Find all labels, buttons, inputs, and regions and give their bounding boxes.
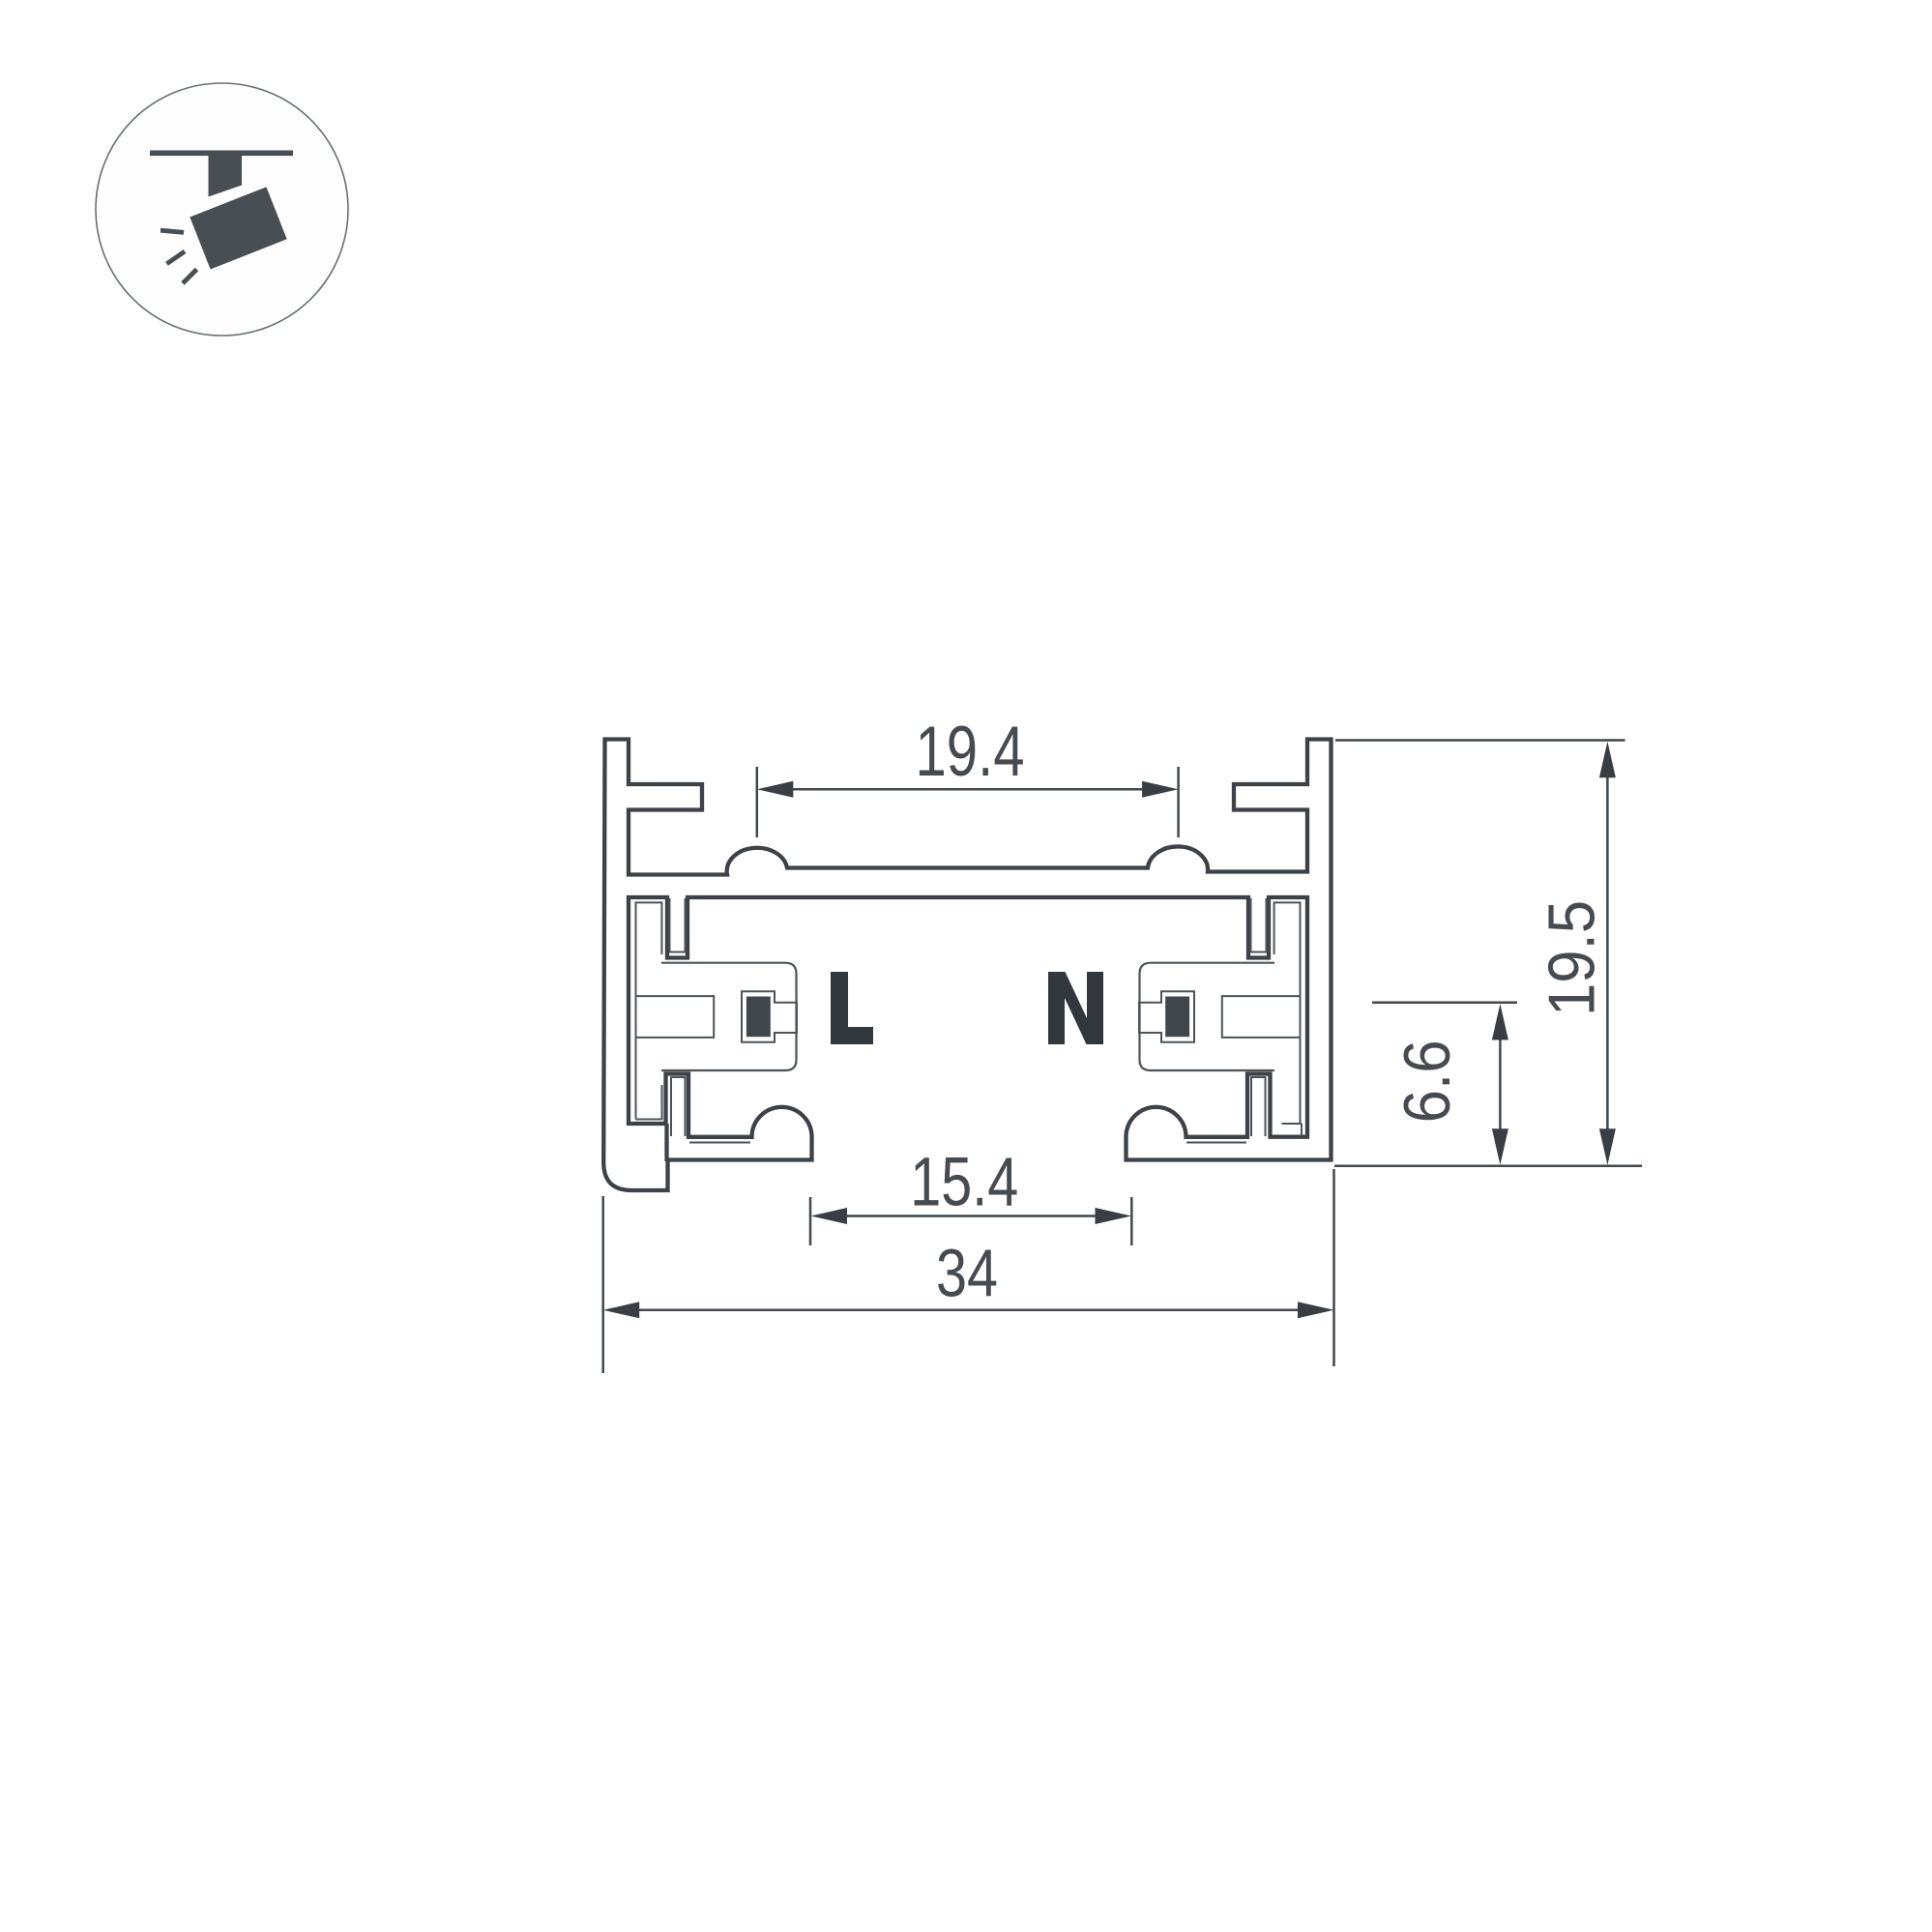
svg-text:15.4: 15.4: [910, 1145, 1018, 1221]
svg-text:19.4: 19.4: [916, 713, 1025, 791]
svg-text:19.5: 19.5: [1536, 900, 1609, 1016]
svg-text:6.6: 6.6: [1390, 1039, 1464, 1123]
svg-text:34: 34: [936, 1236, 998, 1311]
